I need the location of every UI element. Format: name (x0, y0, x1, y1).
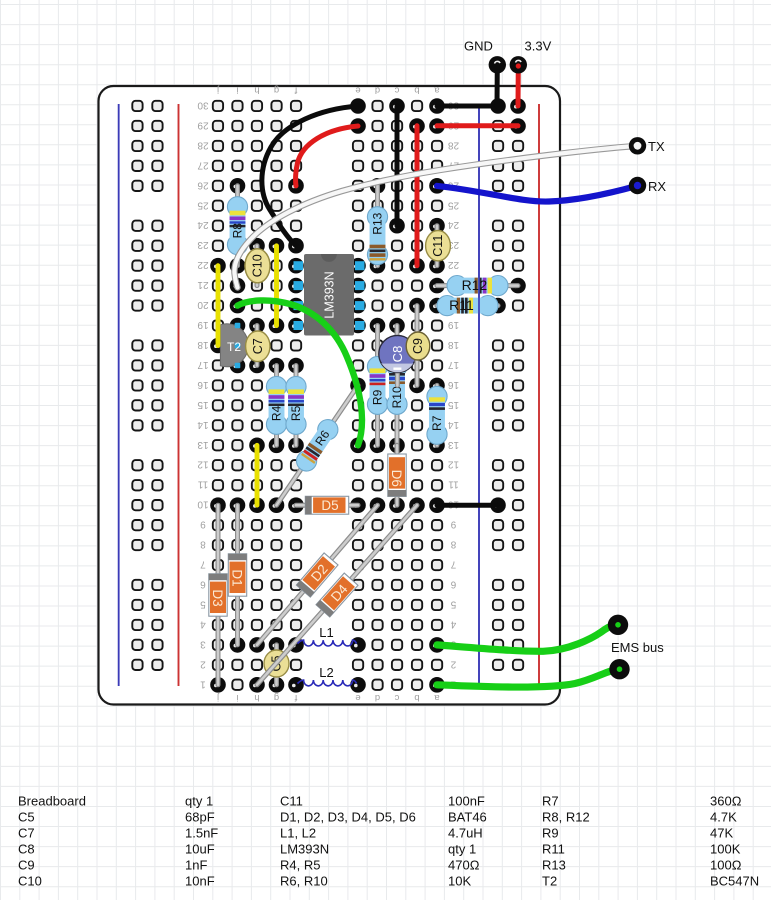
svg-text:h: h (254, 692, 259, 703)
svg-text:R11: R11 (542, 842, 565, 857)
svg-text:14: 14 (197, 419, 209, 430)
svg-text:10nF: 10nF (185, 874, 215, 889)
svg-text:19: 19 (448, 319, 460, 330)
svg-text:b: b (414, 692, 419, 703)
svg-text:29: 29 (197, 120, 209, 131)
svg-text:3: 3 (200, 638, 206, 649)
svg-text:L1: L1 (319, 625, 333, 640)
svg-text:g: g (274, 85, 279, 96)
svg-text:4: 4 (450, 618, 456, 629)
svg-text:470Ω: 470Ω (448, 858, 480, 873)
svg-text:25: 25 (197, 199, 209, 210)
svg-text:c: c (394, 85, 399, 96)
svg-text:C7: C7 (251, 338, 265, 354)
svg-text:16: 16 (197, 379, 209, 390)
svg-text:f: f (294, 85, 297, 96)
svg-text:R4: R4 (270, 405, 284, 421)
svg-text:f: f (294, 692, 297, 703)
svg-text:9: 9 (200, 519, 206, 530)
svg-text:5: 5 (450, 598, 456, 609)
svg-text:47K: 47K (710, 826, 733, 841)
svg-text:R7: R7 (542, 794, 559, 809)
svg-text:R9: R9 (371, 389, 385, 405)
svg-text:T2: T2 (227, 340, 241, 354)
svg-text:15: 15 (448, 399, 460, 410)
svg-text:T2: T2 (542, 874, 557, 889)
svg-text:i: i (236, 692, 238, 703)
svg-text:L1, L2: L1, L2 (280, 826, 316, 841)
svg-text:16: 16 (448, 379, 460, 390)
svg-text:e: e (355, 85, 360, 96)
svg-text:24: 24 (448, 219, 460, 230)
svg-text:3.3V: 3.3V (525, 39, 552, 54)
svg-text:100nF: 100nF (448, 794, 485, 809)
svg-text:RX: RX (648, 179, 666, 194)
svg-text:27: 27 (197, 159, 209, 170)
svg-text:21: 21 (197, 279, 209, 290)
svg-text:R6, R10: R6, R10 (280, 874, 328, 889)
svg-text:10: 10 (197, 499, 209, 510)
svg-text:1: 1 (200, 678, 206, 689)
svg-text:26: 26 (197, 179, 209, 190)
svg-text:11: 11 (197, 479, 208, 490)
svg-text:19: 19 (197, 319, 209, 330)
svg-text:R12: R12 (462, 277, 488, 293)
svg-text:e: e (355, 692, 360, 703)
svg-text:R4, R5: R4, R5 (280, 858, 320, 873)
svg-text:15: 15 (197, 399, 209, 410)
svg-text:C11: C11 (431, 235, 445, 257)
svg-text:C8: C8 (390, 346, 405, 363)
svg-text:BC547N: BC547N (710, 874, 759, 889)
svg-text:a: a (434, 692, 440, 703)
svg-text:D1, D2, D3, D4, D5, D6: D1, D2, D3, D4, D5, D6 (280, 810, 416, 825)
svg-text:L2: L2 (319, 665, 333, 680)
svg-text:4: 4 (200, 618, 206, 629)
svg-text:R7: R7 (430, 415, 444, 431)
svg-text:24: 24 (197, 219, 209, 230)
svg-text:13: 13 (448, 439, 460, 450)
svg-text:7: 7 (200, 559, 206, 570)
svg-text:C7: C7 (18, 826, 35, 841)
svg-text:R5: R5 (289, 405, 303, 421)
svg-text:100K: 100K (710, 842, 741, 857)
svg-text:9: 9 (450, 519, 456, 530)
svg-text:C11: C11 (280, 794, 303, 809)
svg-text:d: d (375, 692, 380, 703)
svg-text:12: 12 (197, 459, 209, 470)
svg-text:6: 6 (200, 579, 206, 590)
svg-text:R9: R9 (542, 826, 559, 841)
svg-text:BAT46: BAT46 (448, 810, 487, 825)
svg-text:D3: D3 (210, 589, 225, 606)
svg-text:23: 23 (197, 239, 209, 250)
svg-text:1.5nF: 1.5nF (185, 826, 218, 841)
svg-text:R13: R13 (542, 858, 566, 873)
svg-text:12: 12 (448, 459, 460, 470)
svg-text:h: h (254, 85, 259, 96)
svg-text:R8: R8 (231, 223, 245, 239)
svg-text:68pF: 68pF (185, 810, 215, 825)
svg-text:LM393N: LM393N (280, 842, 329, 857)
svg-text:R8, R12: R8, R12 (542, 810, 590, 825)
svg-text:R13: R13 (371, 212, 385, 234)
svg-text:28: 28 (197, 139, 209, 150)
svg-text:C10: C10 (251, 254, 265, 277)
svg-text:D5: D5 (321, 498, 338, 513)
svg-text:LM393N: LM393N (323, 271, 337, 318)
svg-text:C9: C9 (18, 858, 35, 873)
svg-text:28: 28 (448, 139, 460, 150)
svg-text:j: j (217, 692, 220, 703)
svg-text:11: 11 (448, 479, 459, 490)
svg-text:17: 17 (197, 359, 209, 370)
svg-text:Breadboard: Breadboard (18, 794, 86, 809)
svg-text:17: 17 (448, 359, 460, 370)
svg-text:20: 20 (197, 299, 209, 310)
svg-text:qty 1: qty 1 (185, 794, 213, 809)
svg-text:C8: C8 (18, 842, 35, 857)
svg-text:25: 25 (448, 199, 460, 210)
svg-text:j: j (217, 85, 220, 96)
svg-text:2: 2 (200, 658, 206, 669)
svg-text:4.7uH: 4.7uH (448, 826, 483, 841)
svg-text:qty 1: qty 1 (448, 842, 476, 857)
svg-text:EMS bus: EMS bus (611, 640, 664, 655)
svg-text:c: c (394, 692, 399, 703)
svg-text:2: 2 (450, 658, 456, 669)
svg-text:4.7K: 4.7K (710, 810, 737, 825)
svg-text:g: g (274, 692, 279, 703)
svg-text:5: 5 (200, 598, 206, 609)
svg-text:6: 6 (450, 579, 456, 590)
svg-text:8: 8 (200, 539, 206, 550)
svg-text:10K: 10K (448, 874, 471, 889)
svg-text:D1: D1 (230, 569, 245, 586)
svg-text:R11: R11 (449, 297, 474, 313)
svg-text:10uF: 10uF (185, 842, 215, 857)
svg-text:C9: C9 (411, 338, 425, 354)
svg-text:D6: D6 (389, 470, 404, 487)
svg-text:C5: C5 (18, 810, 35, 825)
svg-text:14: 14 (448, 419, 460, 430)
svg-text:100Ω: 100Ω (710, 858, 742, 873)
svg-text:d: d (375, 85, 380, 96)
svg-text:R10: R10 (390, 386, 404, 408)
svg-text:a: a (434, 85, 440, 96)
svg-text:22: 22 (448, 259, 460, 270)
svg-text:1nF: 1nF (185, 858, 207, 873)
svg-text:i: i (236, 85, 238, 96)
svg-text:13: 13 (197, 439, 209, 450)
svg-text:b: b (414, 85, 419, 96)
svg-text:18: 18 (448, 339, 460, 350)
svg-text:8: 8 (450, 539, 456, 550)
svg-text:GND: GND (464, 39, 493, 54)
svg-text:C10: C10 (18, 874, 42, 889)
svg-text:360Ω: 360Ω (710, 794, 742, 809)
svg-text:22: 22 (197, 259, 209, 270)
svg-text:18: 18 (197, 339, 209, 350)
svg-text:TX: TX (648, 139, 665, 154)
svg-text:7: 7 (450, 559, 456, 570)
svg-text:30: 30 (197, 100, 209, 111)
